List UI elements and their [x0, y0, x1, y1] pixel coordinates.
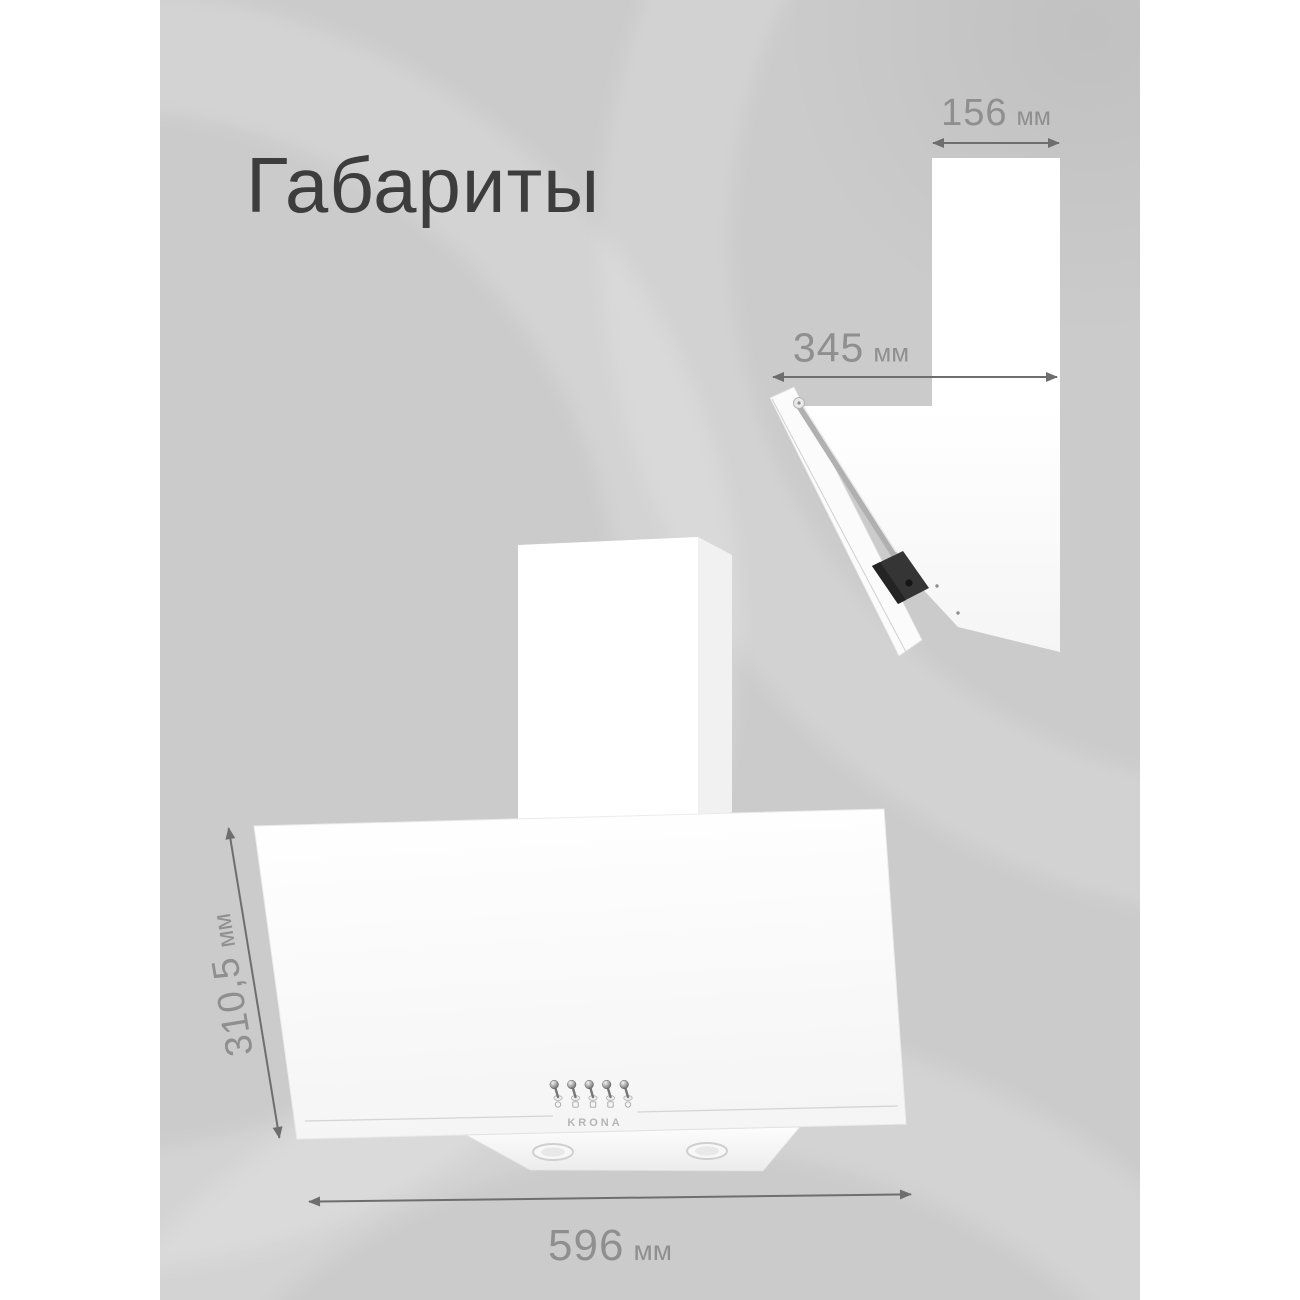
- screw-dot: [956, 611, 959, 614]
- dimension-label: 345 мм: [793, 325, 909, 372]
- dimension-label: 596 мм: [548, 1221, 672, 1271]
- front-glass-panel: [254, 809, 906, 1139]
- lamp-icon: [687, 1143, 727, 1159]
- front-view-illustration: KRONA: [250, 520, 930, 1220]
- page-background: Габариты: [0, 0, 1300, 1300]
- dimension-value: 596: [548, 1221, 624, 1271]
- dimension-arrow-line: [773, 376, 1057, 378]
- dimension-unit: мм: [1017, 103, 1051, 132]
- canopy-underside: [466, 1127, 800, 1171]
- dimension-unit: мм: [873, 338, 909, 369]
- hinge-screw-icon: [794, 398, 805, 409]
- page-title: Габариты: [246, 143, 600, 229]
- brand-logo: KRONA: [567, 1117, 622, 1129]
- dimension-arrow-line: [933, 142, 1059, 144]
- dimension-unit: мм: [633, 1235, 672, 1267]
- dimension-value: 345: [793, 325, 864, 372]
- screw-dot: [935, 584, 938, 587]
- side-chimney-duct: [932, 158, 1060, 420]
- dimension-label: 156 мм: [941, 92, 1051, 135]
- lamp-icon: [533, 1144, 573, 1160]
- front-chimney-duct: [518, 537, 698, 830]
- dimension-value: 156: [941, 92, 1007, 135]
- dimension-unit: мм: [208, 911, 242, 950]
- front-chimney-side-face: [698, 537, 732, 822]
